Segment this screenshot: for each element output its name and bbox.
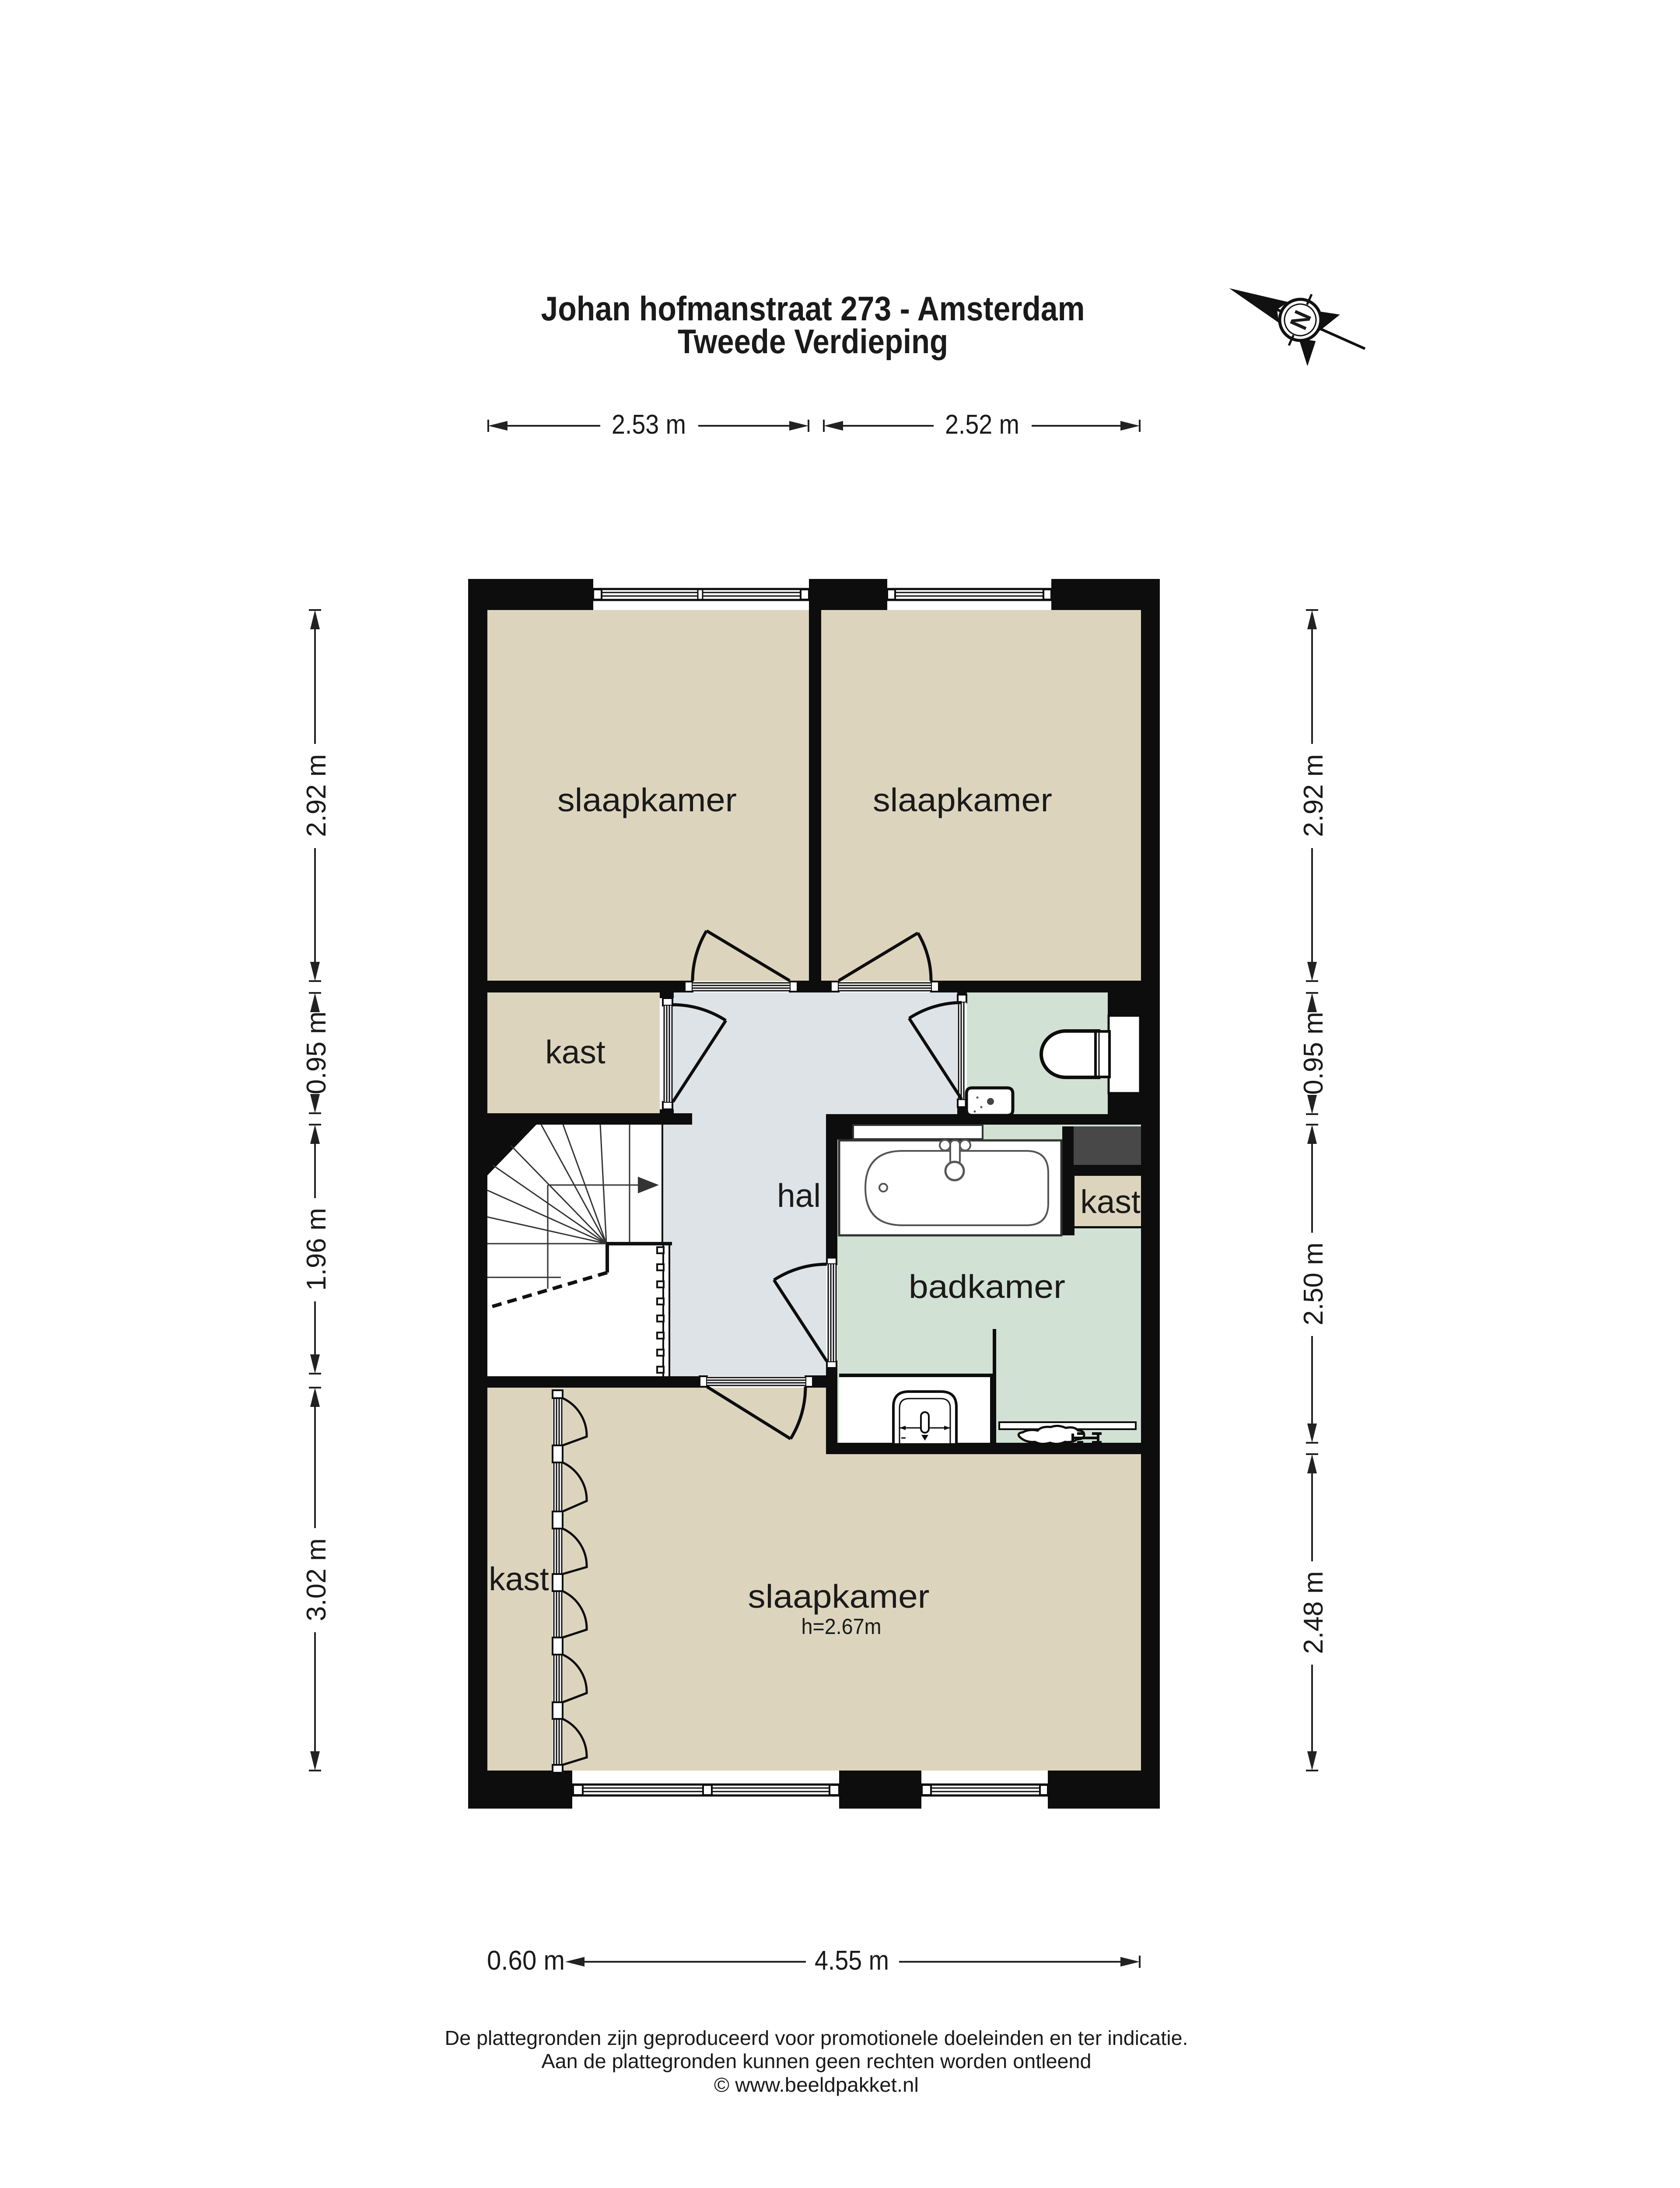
svg-text:slaapkamer: slaapkamer	[748, 1578, 930, 1615]
svg-text:2.92 m: 2.92 m	[301, 754, 332, 837]
svg-text:kast: kast	[1080, 1183, 1141, 1220]
svg-text:Tweede Verdieping: Tweede Verdieping	[678, 322, 948, 361]
svg-text:2.53 m: 2.53 m	[612, 410, 686, 440]
svg-text:1.96 m: 1.96 m	[301, 1208, 332, 1291]
svg-text:De plattegronden zijn geproduc: De plattegronden zijn geproduceerd voor …	[445, 2027, 1188, 2049]
svg-text:4.55 m: 4.55 m	[815, 1946, 889, 1976]
svg-text:0.60 m: 0.60 m	[487, 1946, 565, 1976]
svg-text:3.02 m: 3.02 m	[301, 1538, 332, 1621]
svg-text:2.50 m: 2.50 m	[1298, 1242, 1329, 1325]
svg-text:2.48 m: 2.48 m	[1298, 1571, 1329, 1654]
svg-text:slaapkamer: slaapkamer	[873, 782, 1052, 818]
svg-text:h=2.67m: h=2.67m	[801, 1614, 882, 1639]
svg-text:Aan de plattegronden kunnen ge: Aan de plattegronden kunnen geen rechten…	[542, 2050, 1092, 2072]
svg-text:badkamer: badkamer	[909, 1268, 1065, 1305]
svg-text:0.95 m: 0.95 m	[1298, 1012, 1329, 1095]
svg-text:2.52 m: 2.52 m	[945, 410, 1019, 440]
svg-text:hal: hal	[777, 1177, 821, 1214]
svg-text:2.92 m: 2.92 m	[1298, 754, 1329, 837]
svg-text:kast: kast	[489, 1560, 549, 1597]
svg-text:0.95 m: 0.95 m	[301, 1011, 332, 1094]
svg-text:slaapkamer: slaapkamer	[557, 782, 737, 818]
svg-text:© www.beeldpakket.nl: © www.beeldpakket.nl	[714, 2073, 919, 2096]
svg-text:kast: kast	[545, 1034, 605, 1070]
